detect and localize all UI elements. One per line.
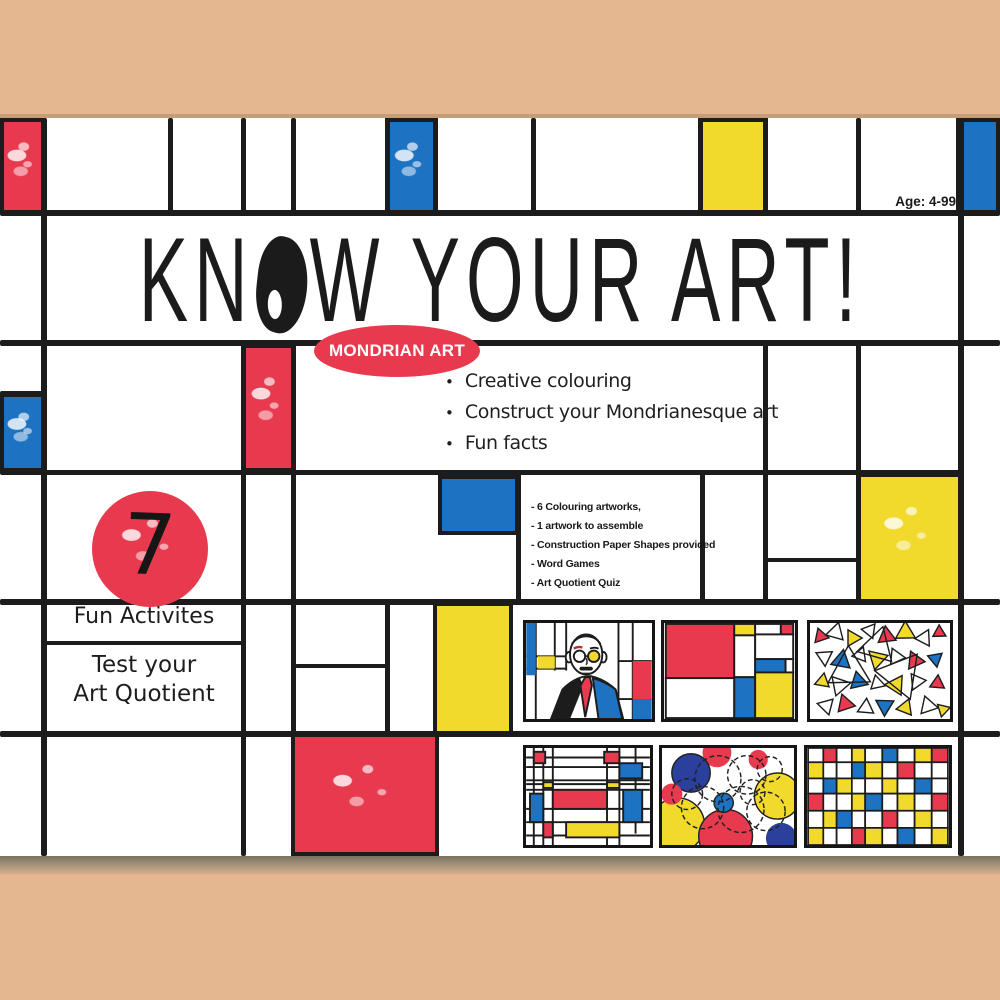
- grid-line: [958, 118, 964, 856]
- thumbnail-composition-with-squares: [661, 620, 798, 722]
- art-quotient-tagline: Test your Art Quotient: [43, 651, 245, 709]
- grid-line: [168, 118, 173, 215]
- grid-line: [856, 340, 861, 603]
- thumbnail-circle-composition: [659, 745, 797, 848]
- paint-blob-o-icon: [252, 230, 312, 340]
- thumbnail-mini-grid-composition: [804, 745, 952, 848]
- highlight-text: Fun facts: [465, 432, 548, 454]
- circle-composition-art: [662, 748, 794, 845]
- list-item: • Construct your Mondrianesque art: [445, 401, 775, 423]
- list-item: - Art Quotient Quiz: [531, 574, 701, 593]
- age-range-label: Age: 4-99: [895, 194, 956, 209]
- blob-highlight: [267, 289, 282, 320]
- grid-line: [856, 118, 861, 215]
- bullet-dot: •: [445, 435, 454, 453]
- list-item: - Construction Paper Shapes provided: [531, 536, 701, 555]
- tagline-line: Test your: [43, 651, 245, 680]
- activities-count-circle: 7: [92, 491, 208, 607]
- bullet-dot: •: [445, 404, 454, 422]
- block-yellow-right: [856, 473, 963, 603]
- highlight-text: Construct your Mondrianesque art: [465, 401, 778, 423]
- grid-line: [0, 731, 1000, 737]
- activity-book-cover: Age: 4-99 KNW YOUR ART! MONDRIAN ART • C…: [0, 118, 1000, 856]
- grid-line: [765, 558, 860, 562]
- grid-line: [241, 340, 246, 856]
- product-photo: Age: 4-99 KNW YOUR ART! MONDRIAN ART • C…: [0, 0, 1000, 1000]
- tagline-line: Art Quotient: [43, 680, 245, 709]
- highlights-list: • Creative colouring • Construct your Mo…: [445, 370, 775, 463]
- block-blue-top: [385, 118, 438, 214]
- grid-line: [385, 118, 390, 215]
- panel-divider-line: [45, 641, 245, 645]
- grid-line: [385, 599, 390, 735]
- block-red-top-left: [0, 118, 46, 214]
- mondrian-art-badge: MONDRIAN ART: [314, 325, 480, 377]
- badge-label: MONDRIAN ART: [329, 341, 465, 361]
- grid-line: [531, 118, 536, 215]
- grid-line: [698, 118, 703, 215]
- thumbnail-line-composition: [523, 745, 653, 848]
- thumbnail-triangle-scatter: [807, 620, 953, 722]
- grid-line: [295, 664, 390, 668]
- contents-list: - 6 Colouring artworks, - 1 artwork to a…: [521, 470, 701, 604]
- grid-line: [0, 470, 963, 475]
- mini-grid-composition-art: [807, 748, 949, 845]
- triangle-scatter-art: [810, 623, 950, 719]
- grid-line: [291, 340, 296, 735]
- grid-line: [0, 391, 46, 395]
- block-blue-left: [0, 393, 46, 472]
- grid-line: [241, 118, 246, 215]
- bullet-dot: •: [445, 373, 454, 391]
- grid-line: [433, 118, 438, 215]
- block-yellow-center: [433, 602, 513, 735]
- title-text-pre: KN: [139, 212, 254, 346]
- activities-label: Fun Activites: [43, 604, 245, 629]
- thumbnail-mondrian-portrait: [523, 620, 655, 722]
- card-bottom-shadow: [0, 856, 1000, 876]
- line-composition-art: [526, 748, 650, 845]
- cover-title: KNW YOUR ART!: [43, 214, 958, 344]
- block-blue-center: [438, 475, 519, 535]
- activities-count: 7: [122, 495, 179, 595]
- list-item: - 1 artwork to assemble: [531, 517, 701, 536]
- block-red-middle: [241, 344, 296, 472]
- composition-with-squares-art: [664, 623, 795, 719]
- list-item: • Fun facts: [445, 432, 775, 454]
- grid-line: [763, 118, 768, 215]
- block-yellow-top: [698, 118, 768, 214]
- list-item: • Creative colouring: [445, 370, 775, 392]
- highlight-text: Creative colouring: [465, 370, 632, 392]
- block-red-bottom: [291, 733, 439, 856]
- list-item: - 6 Colouring artworks,: [531, 498, 701, 517]
- mondrian-portrait-art: [526, 623, 652, 719]
- grid-line: [291, 118, 296, 215]
- list-item: - Word Games: [531, 555, 701, 574]
